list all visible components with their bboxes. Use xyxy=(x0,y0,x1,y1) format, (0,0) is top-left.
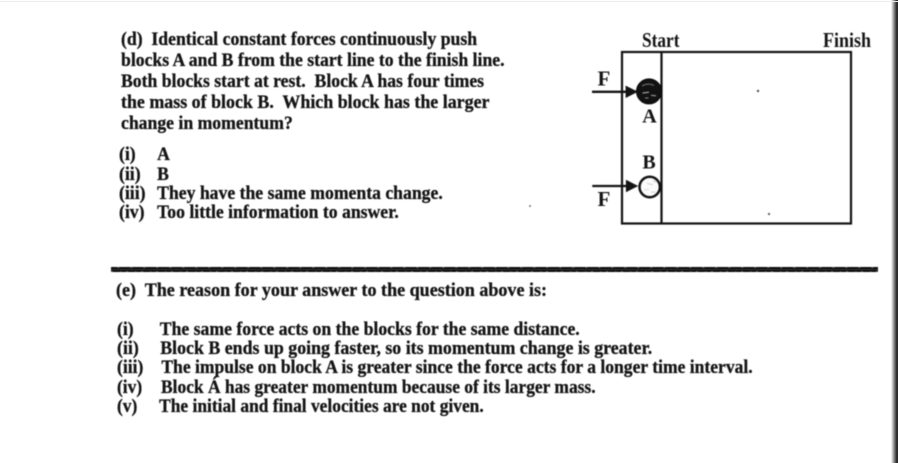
svg-text:Finish: Finish xyxy=(823,28,871,52)
svg-text:F: F xyxy=(598,66,611,90)
svg-text:Start: Start xyxy=(642,28,680,52)
svg-text:F: F xyxy=(598,187,611,211)
svg-text:A: A xyxy=(642,105,657,127)
svg-text:B: B xyxy=(642,152,655,174)
